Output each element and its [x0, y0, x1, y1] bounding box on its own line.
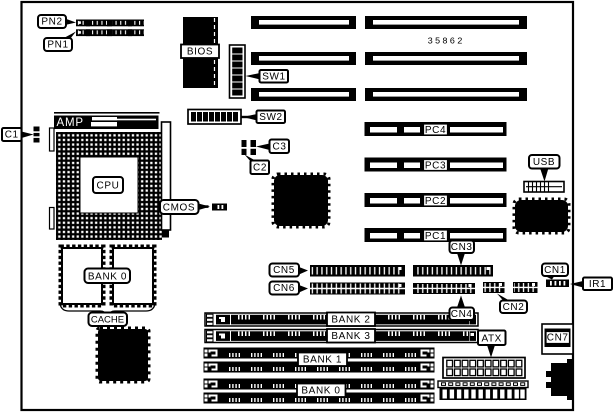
svg-text:PC4: PC4 — [425, 125, 446, 136]
svg-text:C1: C1 — [5, 130, 19, 141]
svg-text:CN7: CN7 — [547, 333, 569, 344]
svg-text:CPU: CPU — [97, 181, 120, 192]
svg-text:PN1: PN1 — [47, 40, 68, 51]
svg-text:SW2: SW2 — [259, 112, 282, 123]
svg-text:ATX: ATX — [481, 334, 502, 345]
svg-text:IR1: IR1 — [589, 279, 606, 290]
svg-text:USB: USB — [533, 157, 555, 168]
svg-text:CN2: CN2 — [503, 302, 525, 313]
svg-text:PC3: PC3 — [425, 161, 446, 172]
svg-text:PN2: PN2 — [41, 17, 62, 28]
svg-text:CMOS: CMOS — [163, 202, 195, 213]
svg-text:C2: C2 — [253, 163, 267, 174]
svg-text:BANK 3: BANK 3 — [331, 331, 370, 342]
svg-text:CN5: CN5 — [273, 265, 295, 276]
svg-text:BANK 0: BANK 0 — [301, 386, 340, 397]
svg-text:CN6: CN6 — [273, 283, 295, 294]
svg-text:SW1: SW1 — [262, 72, 285, 83]
svg-text:CACHE: CACHE — [91, 315, 124, 326]
svg-text:CN3: CN3 — [451, 242, 473, 253]
svg-text:BANK 0: BANK 0 — [88, 271, 127, 282]
svg-text:CN4: CN4 — [451, 309, 473, 320]
svg-text:BANK 1: BANK 1 — [303, 355, 342, 366]
svg-text:BANK 2: BANK 2 — [331, 315, 370, 326]
svg-text:C3: C3 — [273, 142, 287, 153]
svg-text:PC1: PC1 — [425, 231, 446, 242]
svg-text:35862: 35862 — [427, 37, 464, 47]
svg-text:PC2: PC2 — [425, 196, 446, 207]
svg-text:AMP: AMP — [57, 117, 84, 129]
svg-text:BIOS: BIOS — [187, 47, 213, 58]
svg-text:CN1: CN1 — [544, 265, 566, 276]
